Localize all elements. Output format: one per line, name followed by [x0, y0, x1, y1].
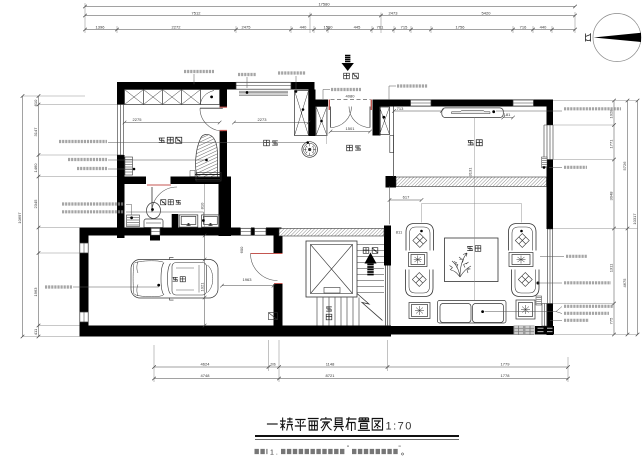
svg-text:5420: 5420 — [482, 10, 492, 15]
svg-text:2473: 2473 — [389, 10, 399, 15]
svg-text:811: 811 — [396, 230, 403, 235]
svg-text:1:70: 1:70 — [386, 421, 413, 433]
svg-text:17580: 17580 — [318, 1, 330, 6]
svg-text:1771: 1771 — [609, 139, 614, 149]
svg-text:4748: 4748 — [201, 373, 211, 378]
svg-text:3048: 3048 — [609, 191, 614, 201]
svg-text:1148: 1148 — [326, 362, 335, 367]
svg-text:1501: 1501 — [346, 126, 356, 131]
svg-text:": " — [347, 446, 349, 452]
svg-text:181: 181 — [504, 112, 511, 117]
svg-text:4080: 4080 — [346, 94, 356, 99]
svg-text:3147: 3147 — [33, 127, 38, 137]
svg-text:7512: 7512 — [192, 10, 202, 15]
svg-text:10697: 10697 — [17, 212, 22, 224]
svg-text:1963: 1963 — [243, 277, 253, 282]
svg-text:775: 775 — [609, 317, 614, 324]
svg-text:2275: 2275 — [133, 117, 143, 122]
svg-text:2272: 2272 — [172, 24, 182, 29]
svg-text:2345: 2345 — [33, 199, 38, 209]
svg-text:610: 610 — [33, 99, 38, 106]
svg-text:1396: 1396 — [96, 24, 106, 29]
svg-text:713: 713 — [397, 106, 404, 111]
svg-text:4675: 4675 — [622, 278, 627, 288]
svg-text:1460: 1460 — [33, 163, 38, 173]
svg-text:1778: 1778 — [501, 373, 511, 378]
svg-text:440: 440 — [300, 24, 307, 29]
svg-text:4624: 4624 — [201, 362, 211, 367]
svg-text:715: 715 — [401, 24, 408, 29]
svg-text:1756: 1756 — [456, 24, 466, 29]
svg-text:10317: 10317 — [632, 213, 637, 225]
svg-text:1779: 1779 — [501, 362, 511, 367]
svg-text:761: 761 — [377, 24, 384, 29]
svg-text:1 .: 1 . — [270, 450, 278, 457]
svg-text:411: 411 — [33, 328, 38, 335]
svg-text:5726: 5726 — [622, 161, 627, 171]
svg-text:": " — [399, 446, 401, 452]
svg-text:716: 716 — [520, 24, 527, 29]
svg-text:1021: 1021 — [199, 282, 204, 292]
svg-text:445: 445 — [354, 24, 361, 29]
svg-text:2273: 2273 — [258, 117, 268, 122]
svg-text:1311: 1311 — [609, 263, 614, 272]
svg-text:8721: 8721 — [326, 373, 336, 378]
svg-text:206: 206 — [270, 363, 276, 367]
svg-text:1500: 1500 — [324, 24, 334, 29]
svg-text:2475: 2475 — [242, 24, 252, 29]
svg-text:600: 600 — [239, 246, 244, 253]
svg-text:3131: 3131 — [468, 167, 473, 177]
svg-text:1963: 1963 — [33, 287, 38, 297]
svg-text:810: 810 — [199, 202, 204, 209]
svg-text:440: 440 — [540, 24, 547, 29]
svg-text:617: 617 — [403, 195, 410, 200]
